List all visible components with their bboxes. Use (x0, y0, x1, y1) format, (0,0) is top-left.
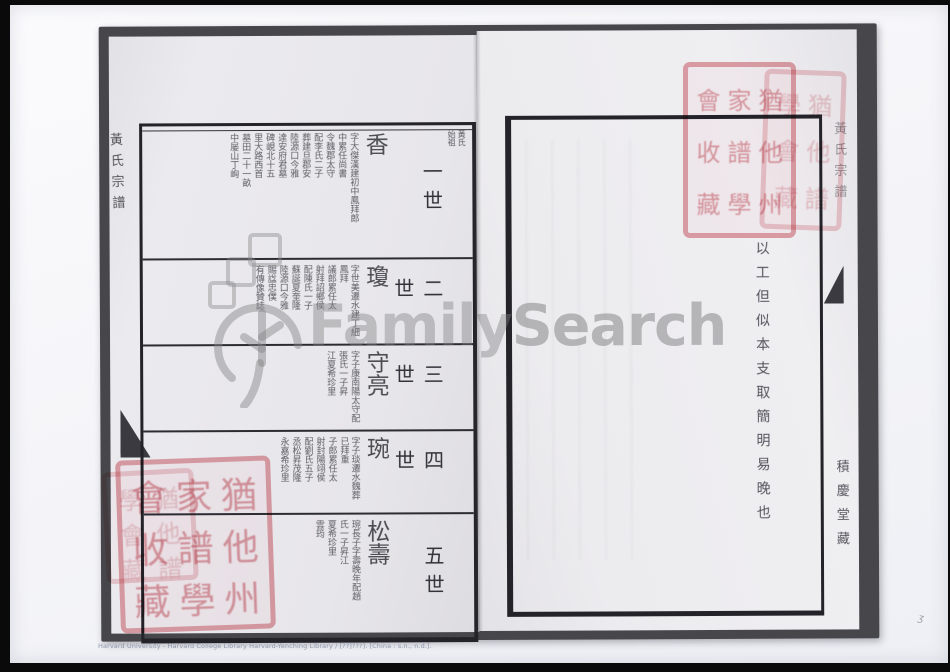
seal-character: 會 (771, 126, 804, 174)
person-entry: 瓊字世美遷水建丁細鳳拜議郎累任太射拜詔鄉侯配陳氏一子蘇誕夏奎隆陸源口今雅賜諡忠僕… (252, 264, 387, 337)
seal-character: 會 (113, 515, 151, 552)
page-corner-fold-right (824, 265, 844, 303)
person-biography-column: 張氏一子昇 (336, 351, 347, 423)
person-biography-column: 墓田二十一畝 (239, 133, 251, 251)
seal-character: 猶 (215, 466, 262, 520)
left-spine-title: 黃氏宗譜 (101, 132, 130, 217)
generation-row: 黃氏始祖一世香字大傑漢建初中鳳拜郎中累任尚書令魏郡太守配李氏二子葬建旦郡安陸源口… (142, 125, 473, 258)
person-biography-column: 夏希珍里 (325, 520, 336, 631)
person-biography-column: 配李氏二子 (311, 133, 323, 251)
person-name: 松壽 (363, 519, 388, 630)
seal-character: 譜 (724, 124, 755, 176)
generation-label: 三世 (389, 364, 447, 407)
seal-character: 會 (693, 72, 724, 124)
person-biography-column: 陸源口今雅 (287, 133, 299, 251)
library-seal-bottom-left-overlap: 猶他譜學會藏 (101, 468, 199, 585)
person-entry: 守亮字子康南陽太守配張氏一子昇江夏希珍里 (323, 350, 387, 422)
person-biography-column: 氏一子昇江 (337, 520, 348, 631)
person-biography-column: 有傳像贊誌 (253, 265, 264, 337)
person-biography-column: 子郎累任太 (325, 437, 336, 506)
person-entry: 松壽琬長子字壽晚年配趙氏一子昇江夏希珍里雲筠 (312, 519, 388, 630)
person-biography-column: 賜諡忠僕 (265, 265, 276, 337)
person-biography-column: 陸源口今雅 (277, 265, 288, 337)
person-courtesy-note: 琬長子字壽晚年配趙 (349, 520, 360, 631)
right-page-annotation: 以工但似本支取簡明易晚也 (749, 241, 775, 529)
person-biography-column: 雲筠 (313, 520, 324, 631)
seal-character: 學 (724, 176, 755, 228)
person-biography-column: 碑峴北十五 (263, 133, 275, 251)
generation-label: 一世 (417, 161, 446, 219)
person-biography-column: 蘇誕夏奎隆 (289, 265, 300, 337)
library-seal-top-right-overlap: 猶他譜學會藏 (759, 69, 847, 232)
viewer-stage: 黃氏宗譜 黃氏始祖一世香字大傑漢建初中鳳拜郎中累任尚書令魏郡太守配李氏二子葬建旦… (0, 0, 950, 672)
seal-character: 藏 (115, 550, 153, 587)
pen-mark: ʒ (917, 613, 925, 625)
seal-character: 他 (802, 127, 835, 175)
person-biography-column: 江夏希珍里 (324, 351, 335, 423)
seal-character: 州 (219, 570, 266, 624)
person-name: 香 (361, 132, 387, 250)
hall-collection-mark: 積慶堂藏 (832, 459, 851, 555)
seal-character: 藏 (770, 172, 803, 220)
seal-character: 他 (217, 518, 264, 572)
seal-character: 譜 (801, 173, 834, 221)
seal-character: 學 (773, 79, 806, 127)
person-biography-column: 議郎累任太 (325, 265, 336, 337)
ancestor-header-label: 黃氏始祖 (446, 130, 466, 146)
header-column: 始祖 (446, 130, 456, 146)
person-courtesy-note: 字子康南陽太守配 (348, 351, 359, 423)
person-courtesy-note: 字大傑漢建初中鳳拜郎 (347, 133, 359, 251)
person-biography-column: 配劉氏五子 (301, 437, 312, 506)
generation-label: 四世 (390, 449, 448, 491)
person-name: 琬 (362, 436, 387, 505)
seal-character: 他 (149, 513, 187, 550)
generation-label: 二世 (389, 278, 447, 321)
person-biography-column: 中屡山丁峋 (227, 133, 239, 251)
person-biography-column: 丞松昇茂隆 (289, 437, 300, 506)
generation-rows: 黃氏始祖一世香字大傑漢建初中鳳拜郎中累任尚書令魏郡太守配李氏二子葬建旦郡安陸源口… (142, 125, 472, 126)
seal-character: 藏 (693, 176, 724, 228)
catalog-caption: Harvard University - Harvard College Lib… (98, 642, 432, 650)
person-biography-column: 葬建旦郡安 (299, 133, 311, 251)
generation-row: 二世瓊字世美遷水建丁細鳳拜議郎累任太射拜詔鄉侯配陳氏一子蘇誕夏奎隆陸源口今雅賜諡… (143, 257, 473, 344)
seal-character: 學 (112, 480, 150, 517)
generation-row: 三世守亮字子康南陽太守配張氏一子昇江夏希珍里 (143, 343, 473, 430)
person-name: 守亮 (362, 350, 387, 422)
person-biography-column: 里大路西首 (251, 133, 263, 251)
generation-label: 五世 (419, 545, 448, 603)
person-name: 瓊 (362, 264, 387, 336)
header-column: 黃氏 (456, 130, 466, 146)
person-entry: 香字大傑漢建初中鳳拜郎中累任尚書令魏郡太守配李氏二子葬建旦郡安陸源口今雅達安府君… (226, 132, 387, 251)
person-biography-column: 令魏郡太守 (323, 133, 335, 251)
person-biography-column: 配陳氏一子 (301, 265, 312, 337)
seal-character: 譜 (151, 548, 189, 585)
person-biography-column: 中累任尚書 (335, 133, 347, 251)
person-biography-column: 射拜詔鄉侯 (313, 265, 324, 337)
person-entry: 琬字子琰遷水魏葬已拜重子郎累任太射封陽翊侯配劉氏五子丞松昇茂隆永嘉希珍里 (276, 436, 387, 505)
seal-character: 猶 (148, 478, 186, 515)
scan-photo-background: 黃氏宗譜 黃氏始祖一世香字大傑漢建初中鳳拜郎中累任尚書令魏郡太守配李氏二子葬建旦… (10, 5, 948, 663)
seal-character: 家 (724, 72, 755, 124)
person-courtesy-note: 字子琰遷水魏葬已拜重 (337, 437, 359, 506)
person-biography-column: 射封陽翊侯 (313, 437, 324, 506)
person-biography-column: 達安府君墓 (275, 133, 287, 251)
person-courtesy-note: 字世美遷水建丁細鳳拜 (337, 265, 359, 337)
person-biography-column: 永嘉希珍里 (277, 437, 288, 506)
seal-character: 收 (693, 124, 724, 176)
seal-character: 猶 (804, 80, 837, 128)
ink-bleed-through (525, 139, 647, 560)
